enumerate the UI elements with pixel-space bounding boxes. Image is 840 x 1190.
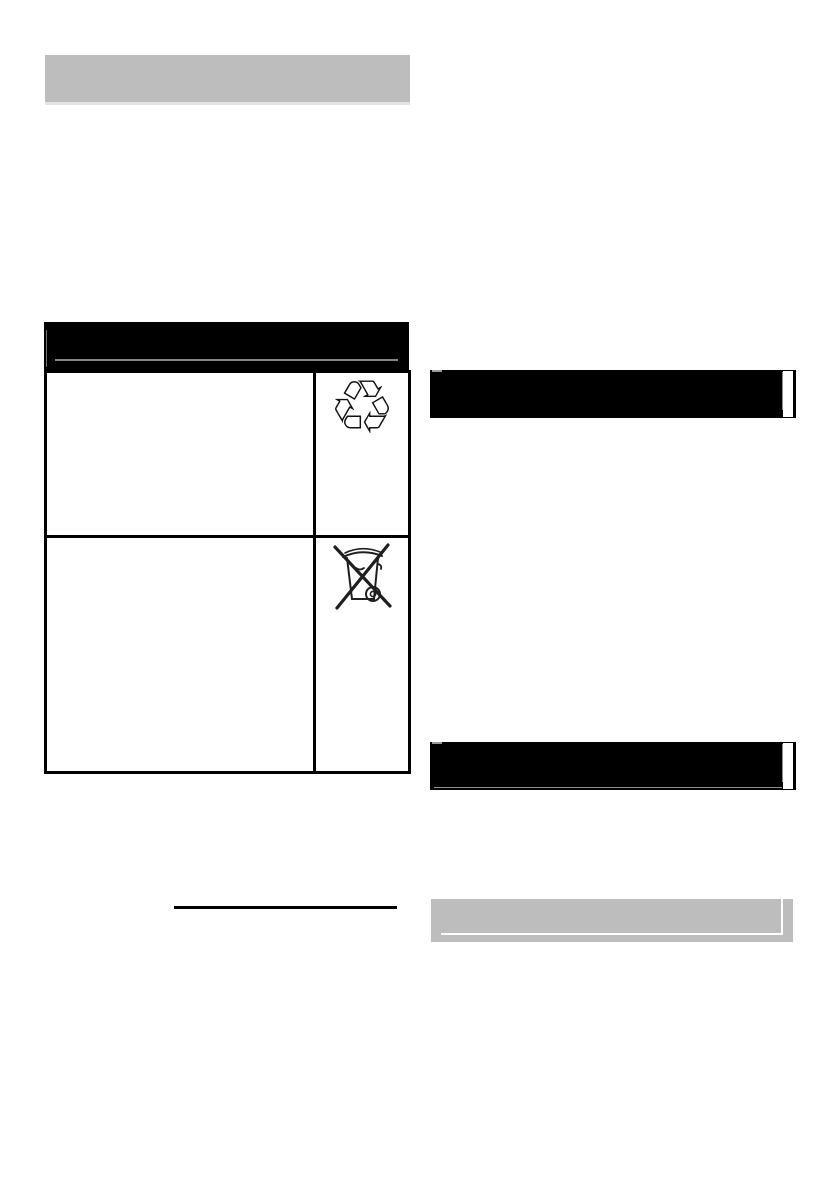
table-cell-description-row2 — [47, 535, 313, 771]
table-header-inner-rule — [55, 359, 398, 361]
recycling-symbol-icon: ♲ — [329, 374, 395, 442]
right-subheading-bar-bevel-right — [781, 899, 783, 935]
right-heading-bar-2 — [430, 742, 796, 790]
right-heading-bar-2-bottom-rule — [434, 787, 782, 788]
right-subheading-bar — [431, 899, 793, 942]
right-heading-bar-1-slit — [783, 371, 793, 417]
top-title-placeholder-bar — [45, 55, 410, 102]
right-heading-bar-1 — [430, 370, 796, 418]
table-cell-symbol-row2 — [313, 535, 408, 771]
table-header-left-rule — [46, 330, 47, 367]
symbols-table: ♲ — [44, 370, 411, 774]
right-heading-bar-2-corner-tick — [432, 742, 442, 744]
right-subheading-bar-bevel-bottom — [441, 933, 783, 935]
table-cell-symbol-row1: ♲ — [313, 373, 408, 535]
right-heading-bar-2-slit — [783, 743, 793, 789]
footnote-rule — [174, 906, 397, 909]
table-header-bar — [44, 322, 409, 370]
crossed-out-wheelie-bin-icon — [329, 540, 395, 612]
table-cell-description-row1 — [47, 373, 313, 535]
right-heading-bar-1-corner-tick — [432, 370, 442, 372]
